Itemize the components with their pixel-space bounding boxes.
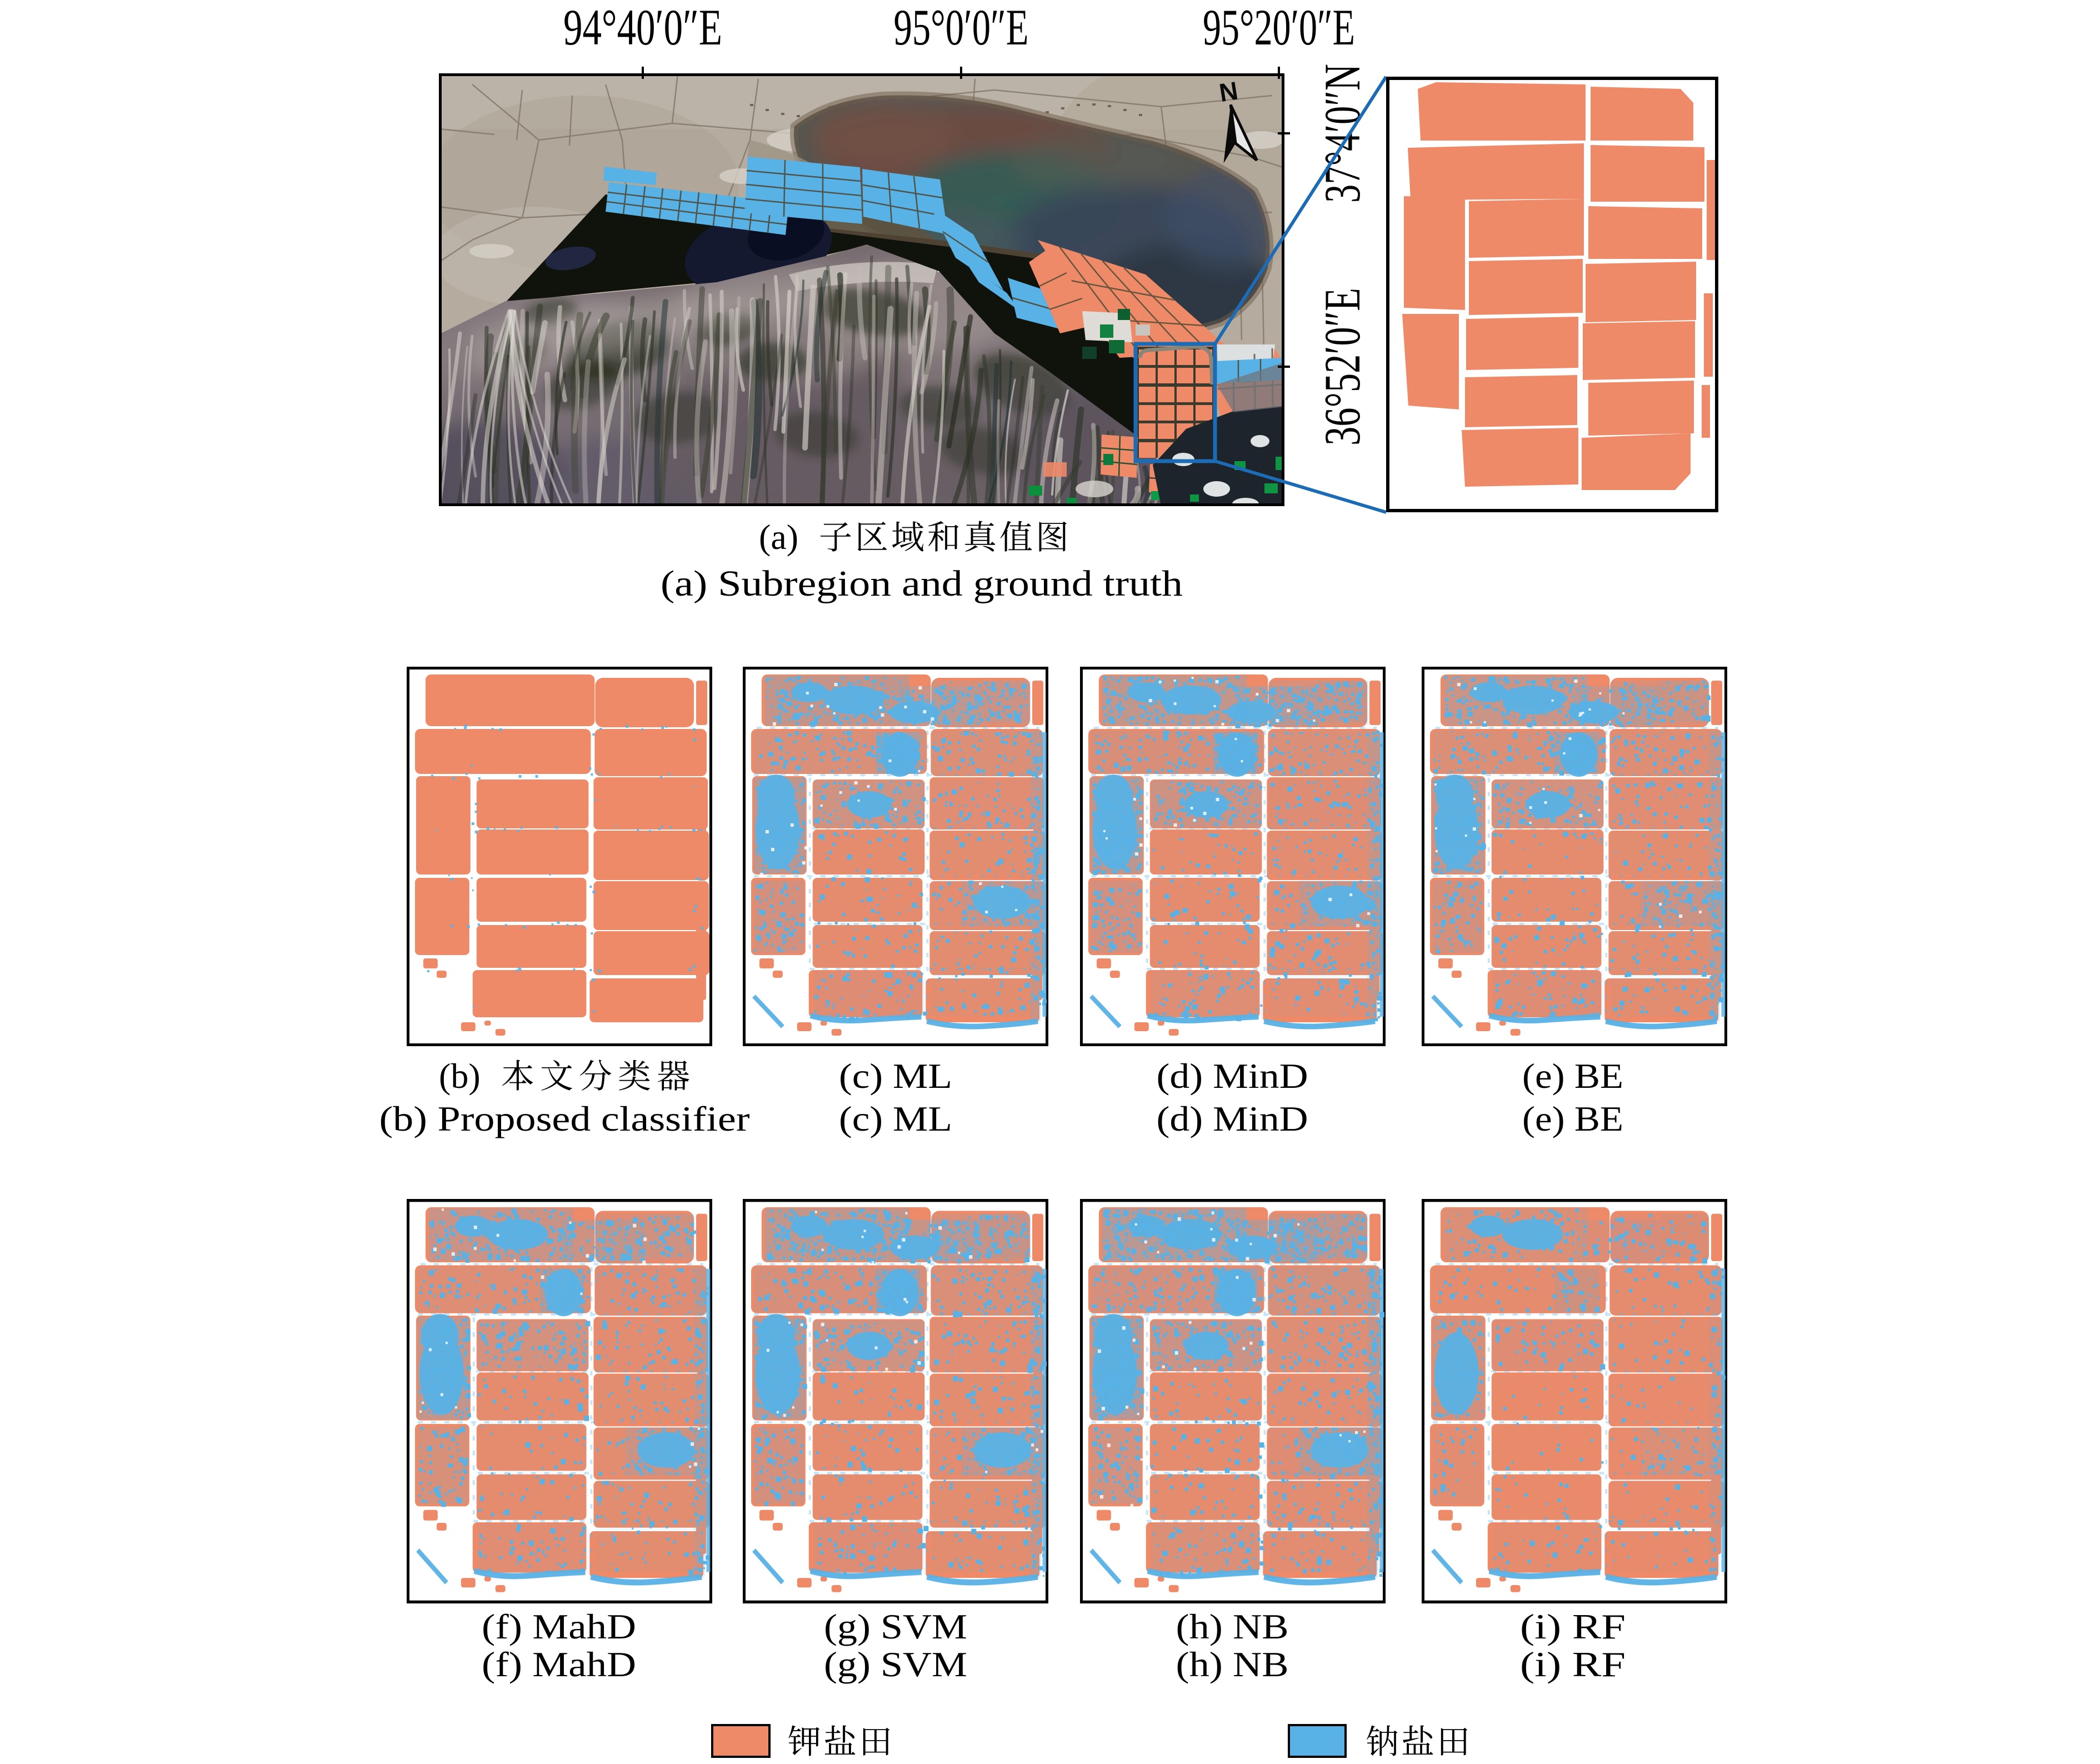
svg-text:(d) MinD: (d) MinD [1157,1099,1308,1138]
svg-text:(h) NB: (h) NB [1176,1645,1289,1684]
svg-text:(a) Subregion and ground truth: (a) Subregion and ground truth [661,563,1183,604]
svg-text:(e) BE: (e) BE [1522,1099,1623,1138]
svg-text:(g) SVM: (g) SVM [824,1645,967,1684]
svg-text:(f) MahD: (f) MahD [482,1645,636,1684]
svg-text:(i) RF: (i) RF [1520,1645,1626,1684]
svg-text:(b) Proposed classifier: (b) Proposed classifier [379,1099,750,1138]
svg-text:(c) ML: (c) ML [839,1099,952,1138]
